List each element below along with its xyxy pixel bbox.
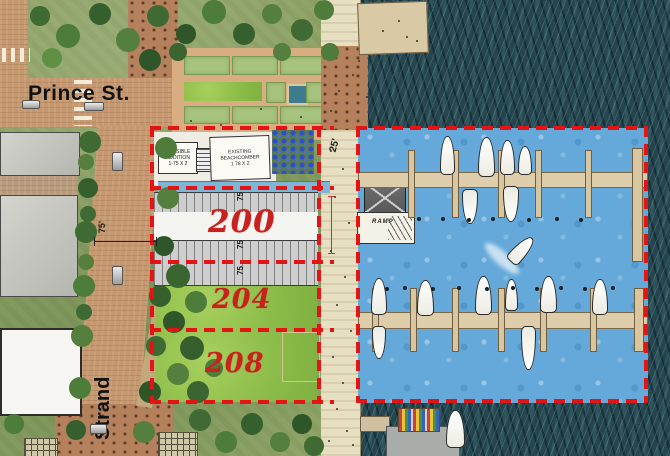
garden-hedge: [232, 56, 278, 75]
dim-tick: [156, 237, 157, 246]
boat: [540, 276, 557, 313]
side-street: [0, 0, 28, 80]
red-dim-tick: [328, 253, 335, 254]
beachcomber-building: EXISTING BEACHCOMBER 1 78 X 2: [209, 135, 270, 181]
boat: [371, 278, 387, 315]
beachcomber-label-3: 1 78 X 2: [211, 160, 269, 168]
parcel-outline-top: [150, 126, 334, 130]
red-dim-tick: [328, 196, 335, 197]
garden-hedge: [184, 106, 230, 124]
crosswalk-top: [2, 48, 30, 62]
parcel-divider-1: [150, 186, 334, 190]
possible-addition-building: POSSIBLE ADDITION 1-75 X 2: [158, 142, 198, 174]
garden-hedge: [232, 106, 278, 124]
finger-pier: [535, 150, 542, 218]
parcel-label-200: 200: [208, 204, 276, 240]
trees: [0, 0, 12, 12]
marina-basin: RAMP: [358, 128, 648, 403]
end-pier: [634, 288, 644, 352]
boat-ramp: RAMP: [357, 212, 415, 244]
marina-outline-top: [356, 126, 648, 130]
marina-outline-right: [644, 126, 648, 403]
plaza-structure: [24, 438, 58, 456]
flower-bed: [272, 130, 314, 174]
motorboat: [505, 233, 538, 267]
prince-street-label: Prince St.: [28, 82, 130, 106]
parcel-outline-bottom: [150, 400, 334, 404]
strand-width-dim: 75': [97, 221, 107, 233]
finger-pier: [410, 288, 417, 352]
boat: [475, 276, 492, 315]
people-dots: [0, 0, 2, 2]
parcel-divider-3: [150, 328, 334, 332]
red-dim-line: [331, 196, 332, 254]
car: [112, 266, 123, 285]
boat: [521, 326, 536, 370]
finger-pier: [498, 288, 505, 352]
kayak-rack: [398, 408, 440, 432]
dim-tick: [94, 237, 95, 246]
car: [112, 152, 123, 171]
boat: [462, 189, 478, 224]
garden-fountain: [287, 84, 308, 105]
waterfront-plaza: [321, 46, 368, 130]
stall-dim-1: 75: [236, 192, 245, 201]
end-pier: [632, 148, 643, 262]
marina-outline-left: [356, 126, 360, 403]
parcel-label-208: 208: [205, 348, 264, 379]
plaza-structure: [158, 432, 198, 456]
boat: [500, 140, 515, 175]
upper-deck: [357, 1, 429, 55]
marina-outline-bottom: [356, 399, 648, 403]
car: [90, 424, 107, 434]
finger-pier: [452, 288, 459, 352]
building-gray: [0, 195, 78, 297]
addition-label-3: 1-75 X 2: [159, 161, 197, 167]
building-white: [0, 328, 82, 416]
parcel-divider-2: [150, 260, 334, 264]
boat: [503, 186, 519, 222]
boat: [417, 280, 434, 316]
garden-hedge: [266, 82, 286, 103]
site-plan-map: RAMP: [0, 0, 670, 456]
parcel-label-204: 204: [212, 284, 271, 315]
dim-line: [94, 241, 156, 242]
parcel-outline-right: [317, 126, 321, 404]
boat: [518, 146, 532, 175]
building-gray: [0, 132, 80, 176]
car: [84, 102, 104, 111]
ramp-hatch: [388, 216, 412, 240]
garden-hedge: [184, 56, 230, 75]
strand-north-plaza: [128, 0, 178, 80]
boat: [478, 137, 495, 177]
boat: [505, 279, 518, 311]
boat: [592, 279, 608, 315]
stall-dim-2: 75: [236, 240, 245, 249]
driveway: [0, 173, 78, 196]
garden-lawn: [184, 82, 262, 101]
car: [22, 100, 40, 109]
stall-dim-3: 75: [236, 266, 245, 275]
boat: [372, 326, 386, 359]
lawn-court: [282, 332, 320, 382]
finger-pier: [408, 150, 415, 218]
parcel-outline-left: [150, 126, 154, 404]
finger-pier: [585, 150, 592, 218]
boat: [440, 136, 455, 175]
